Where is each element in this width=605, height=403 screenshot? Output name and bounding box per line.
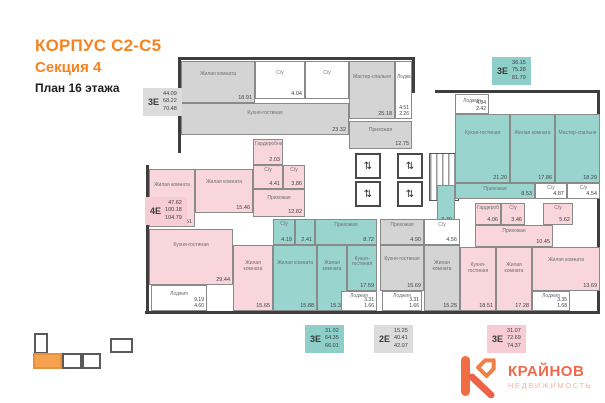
room-area: 8.72 bbox=[363, 237, 374, 243]
room-loggia: Лоджия 4.84 2.42 bbox=[455, 94, 489, 114]
room-area: 4.56 bbox=[446, 237, 457, 243]
room-area: 17.86 bbox=[538, 175, 552, 181]
elevator-icon: ⇅ bbox=[355, 153, 381, 179]
room-living: Жилая комната 18.91 bbox=[181, 61, 255, 103]
room-area: 15.88 bbox=[300, 303, 314, 309]
room-area: 12.75 bbox=[395, 141, 409, 147]
badge-4e-left-pink[interactable]: 4Е 47.62 100.18 104.79 bbox=[145, 197, 187, 225]
room-area: 4.04 bbox=[291, 91, 302, 97]
room-loggia: Лоджия 9.19 4.60 bbox=[151, 285, 207, 311]
room-hallway: Прихожая 12.75 bbox=[349, 121, 412, 149]
room-bathroom: С/у bbox=[305, 61, 349, 99]
room-bathroom: С/у 5.62 bbox=[543, 203, 573, 225]
room-bathroom: С/у 3.46 bbox=[501, 203, 525, 225]
room-name: Прихожая bbox=[351, 128, 410, 134]
room-area: 10.45 bbox=[536, 239, 550, 245]
page-header: КОРПУС С2-С5 Секция 4 План 16 этажа bbox=[35, 36, 161, 95]
badge-areas: 36.15 75.28 81.70 bbox=[512, 60, 526, 82]
room-name: С/у bbox=[426, 223, 458, 229]
room-name: Кухня-гостиная bbox=[382, 257, 422, 263]
room-name: Жилая комната bbox=[534, 258, 598, 264]
room-bathroom: С/у 4.56 bbox=[424, 219, 460, 245]
room-name: Гардероб bbox=[477, 206, 499, 212]
room-hallway: Прихожая 10.45 bbox=[475, 225, 553, 247]
room-area: 18.91 bbox=[238, 95, 252, 101]
room-loggia: Лоджия 3.31 1.66 bbox=[382, 291, 422, 311]
badge-type: 3Е bbox=[492, 334, 503, 344]
badge-type: 3Е bbox=[148, 97, 159, 107]
room-name: Гардеробная bbox=[255, 142, 281, 148]
room-bathroom: С/у 4.87 bbox=[535, 183, 567, 199]
room-living: Жилая комната 17.28 bbox=[496, 247, 532, 311]
room-bathroom: С/у 4.54 bbox=[567, 183, 600, 199]
room-name: Жилая комната bbox=[151, 183, 193, 189]
room-name: Жилая комната bbox=[498, 263, 530, 275]
room-name: Лоджия bbox=[397, 75, 410, 81]
room-bathroom: С/у 4.19 bbox=[273, 219, 295, 245]
badge-areas: 47.62 100.18 104.79 bbox=[165, 200, 182, 222]
elevator-icon: ⇅ bbox=[397, 153, 423, 179]
minimap-section[interactable] bbox=[82, 353, 101, 369]
room-area: 17.59 bbox=[360, 283, 374, 289]
room-area: 18.29 bbox=[583, 175, 597, 181]
room-living: Жилая комната 15.88 bbox=[273, 245, 317, 311]
room-area: 9.19 4.60 bbox=[194, 297, 204, 309]
room-bathroom: С/у 4.04 bbox=[255, 61, 305, 99]
room-area: 4.54 bbox=[586, 191, 597, 197]
room-name: Прихожая bbox=[317, 223, 375, 229]
logo-text: КРАЙНОВ НЕДВИЖИМОСТЬ bbox=[508, 363, 592, 390]
badge-3e-bottom-teal[interactable]: 3Е 31.02 64.35 66.01 bbox=[305, 325, 344, 353]
room-living: Жилая комната 15.25 bbox=[424, 245, 460, 311]
room-area: 4.90 bbox=[410, 237, 421, 243]
badge-areas: 44.09 68.22 70.48 bbox=[163, 91, 177, 113]
badge-3e-top-right-teal[interactable]: 3Е 36.15 75.28 81.70 bbox=[492, 57, 531, 85]
logo-name: КРАЙНОВ bbox=[508, 363, 592, 380]
building-minimap bbox=[30, 330, 140, 376]
room-area: 8.53 bbox=[521, 191, 532, 197]
room-name: С/у bbox=[307, 71, 347, 77]
room-wardrobe: Гардероб 4.06 bbox=[475, 203, 501, 225]
room-area: 12.82 bbox=[288, 209, 302, 215]
minimap-section[interactable] bbox=[110, 338, 133, 353]
room-name: Жилая комната bbox=[235, 261, 271, 273]
badge-3e-top-gray[interactable]: 3Е 44.09 68.22 70.48 bbox=[143, 88, 182, 116]
wall bbox=[435, 90, 600, 93]
room-name: Прихожая bbox=[477, 229, 551, 235]
room-master-bedroom: Мастер-спальня 25.18 bbox=[349, 61, 395, 119]
room-area: 23.32 bbox=[332, 127, 346, 133]
room-kitchen: Кухня-гостиная 21.20 bbox=[455, 114, 510, 183]
badge-type: 3Е bbox=[497, 66, 508, 76]
badge-areas: 31.02 64.35 66.01 bbox=[325, 328, 339, 350]
room-name: Жилая комната bbox=[319, 261, 345, 273]
room-area: 4.06 bbox=[487, 217, 498, 223]
room-name: Мастер-спальня bbox=[557, 131, 598, 137]
room-name: Кухня-гостиная bbox=[183, 111, 347, 117]
room-kitchen: Кухня-гостиная 17.59 bbox=[347, 245, 377, 291]
room-name: С/у bbox=[545, 206, 571, 212]
room-area: 4.51 2.26 bbox=[399, 105, 409, 117]
lift-arrows-icon: ⇅ bbox=[406, 189, 414, 200]
room-name: Жилая комната bbox=[197, 180, 251, 186]
room-area: 25.18 bbox=[378, 111, 392, 117]
room-area: 2.03 bbox=[269, 157, 280, 163]
logo-subtitle: НЕДВИЖИМОСТЬ bbox=[508, 381, 592, 390]
building-title: КОРПУС С2-С5 bbox=[35, 36, 161, 56]
room-name: Кухня-гостиная bbox=[462, 263, 494, 275]
elevator-icon: ⇅ bbox=[355, 181, 381, 207]
room-hallway: Прихожая 8.72 bbox=[315, 219, 377, 245]
room-area: 13.69 bbox=[583, 283, 597, 289]
room-name: С/у bbox=[285, 168, 303, 174]
room-hallway: Прихожая 4.90 bbox=[380, 219, 424, 245]
room-bathroom: С/у 4.41 bbox=[253, 165, 283, 189]
room-name: Мастер-спальня bbox=[351, 75, 393, 81]
room-bathroom: С/у 3.86 bbox=[283, 165, 305, 189]
room-area: 29.44 bbox=[216, 277, 230, 283]
agency-logo: КРАЙНОВ НЕДВИЖИМОСТЬ bbox=[460, 354, 592, 398]
lift-arrows-icon: ⇅ bbox=[406, 161, 414, 172]
room-area: 4.84 2.42 bbox=[476, 100, 486, 112]
room-area: 3.31 1.66 bbox=[409, 297, 419, 309]
room-kitchen: Кухня-гостиная 23.32 bbox=[181, 103, 349, 135]
wall bbox=[412, 57, 415, 93]
room-name: С/у bbox=[503, 206, 523, 212]
room-area: 2.41 bbox=[301, 237, 312, 243]
wall bbox=[145, 311, 600, 314]
room-area: 18.51 bbox=[479, 303, 493, 309]
room-loggia: Лоджия 3.31 1.66 bbox=[341, 291, 377, 311]
minimap-section[interactable] bbox=[62, 353, 82, 369]
room-area: 4.87 bbox=[553, 191, 564, 197]
room-name: Прихожая bbox=[382, 223, 422, 229]
room-name: С/у bbox=[275, 222, 293, 228]
room-living: Жилая комната 17.86 bbox=[510, 114, 555, 183]
room-name: Жилая комната bbox=[275, 261, 315, 267]
elevator-icon: ⇅ bbox=[397, 181, 423, 207]
room-living: Жилая комната 13.69 bbox=[532, 247, 600, 291]
room-name: Жилая комната bbox=[426, 261, 458, 273]
badge-type: 4Е bbox=[150, 206, 161, 216]
lift-arrows-icon: ⇅ bbox=[364, 189, 372, 200]
room-area: 3.46 bbox=[511, 217, 522, 223]
room-area: 3.31 1.66 bbox=[364, 297, 374, 309]
room-area: 4.41 bbox=[269, 181, 280, 187]
room-kitchen: Кухня-гостиная 29.44 bbox=[149, 229, 233, 285]
room-name: Жилая комната bbox=[512, 131, 553, 137]
lift-arrows-icon: ⇅ bbox=[364, 161, 372, 172]
minimap-section-active[interactable] bbox=[33, 353, 62, 369]
room-master-bedroom: Мастер-спальня 18.29 bbox=[555, 114, 600, 183]
room-living: Жилая комната 15.65 bbox=[233, 245, 273, 311]
room-area: 3.35 1.68 bbox=[557, 297, 567, 309]
room-loggia: Лоджия 3.35 1.68 bbox=[532, 291, 570, 311]
room-name: Кухня-гостиная bbox=[349, 257, 375, 269]
room-kitchen: Кухня-гостиная 18.51 bbox=[460, 247, 496, 311]
room-name: Жилая комната bbox=[183, 72, 253, 78]
room-area: 3.86 bbox=[291, 181, 302, 187]
badge-2e-bottom-gray[interactable]: 2Е 15.25 40.41 42.07 bbox=[374, 325, 413, 353]
room-area: 15.69 bbox=[407, 283, 421, 289]
room-area: 15.65 bbox=[256, 303, 270, 309]
minimap-section[interactable] bbox=[34, 333, 48, 354]
room-area: 15.46 bbox=[236, 205, 250, 211]
room-kitchen: Кухня-гостиная 15.69 bbox=[380, 245, 424, 291]
room-wardrobe: Гардеробная 2.03 bbox=[253, 139, 283, 165]
room-name: С/у bbox=[257, 71, 303, 77]
room-area: 4.19 bbox=[281, 237, 292, 243]
room-hallway: Прихожая 12.82 bbox=[253, 189, 305, 217]
section-title: Секция 4 bbox=[35, 59, 161, 76]
room-living: Жилая комната 15.46 bbox=[195, 169, 253, 213]
room-area: 21.20 bbox=[493, 175, 507, 181]
room-area: 5.62 bbox=[559, 217, 570, 223]
badge-areas: 15.25 40.41 42.07 bbox=[394, 328, 408, 350]
room-area: 15.25 bbox=[443, 303, 457, 309]
room-area: 17.28 bbox=[515, 303, 529, 309]
room-name: Прихожая bbox=[255, 196, 303, 202]
badge-3e-bottom-pink[interactable]: 3Е 31.07 72.69 74.37 bbox=[487, 325, 526, 353]
room-name: Кухня-гостиная bbox=[151, 243, 231, 249]
room-loggia: Лоджия 4.51 2.26 bbox=[395, 61, 412, 119]
badge-type: 3Е bbox=[310, 334, 321, 344]
wall bbox=[178, 57, 414, 60]
floor-plan: Жилая комната 18.91 С/у 4.04 С/у Кухня-г… bbox=[145, 57, 600, 314]
badge-type: 2Е bbox=[379, 334, 390, 344]
logo-k-house-icon bbox=[460, 354, 500, 398]
room-name: Кухня-гостиная bbox=[457, 131, 508, 137]
room-name: С/у bbox=[255, 168, 281, 174]
room-hallway: Прихожая 8.53 bbox=[455, 183, 535, 199]
badge-areas: 31.07 72.69 74.37 bbox=[507, 328, 521, 350]
room-wardrobe: 2.41 bbox=[295, 219, 315, 245]
